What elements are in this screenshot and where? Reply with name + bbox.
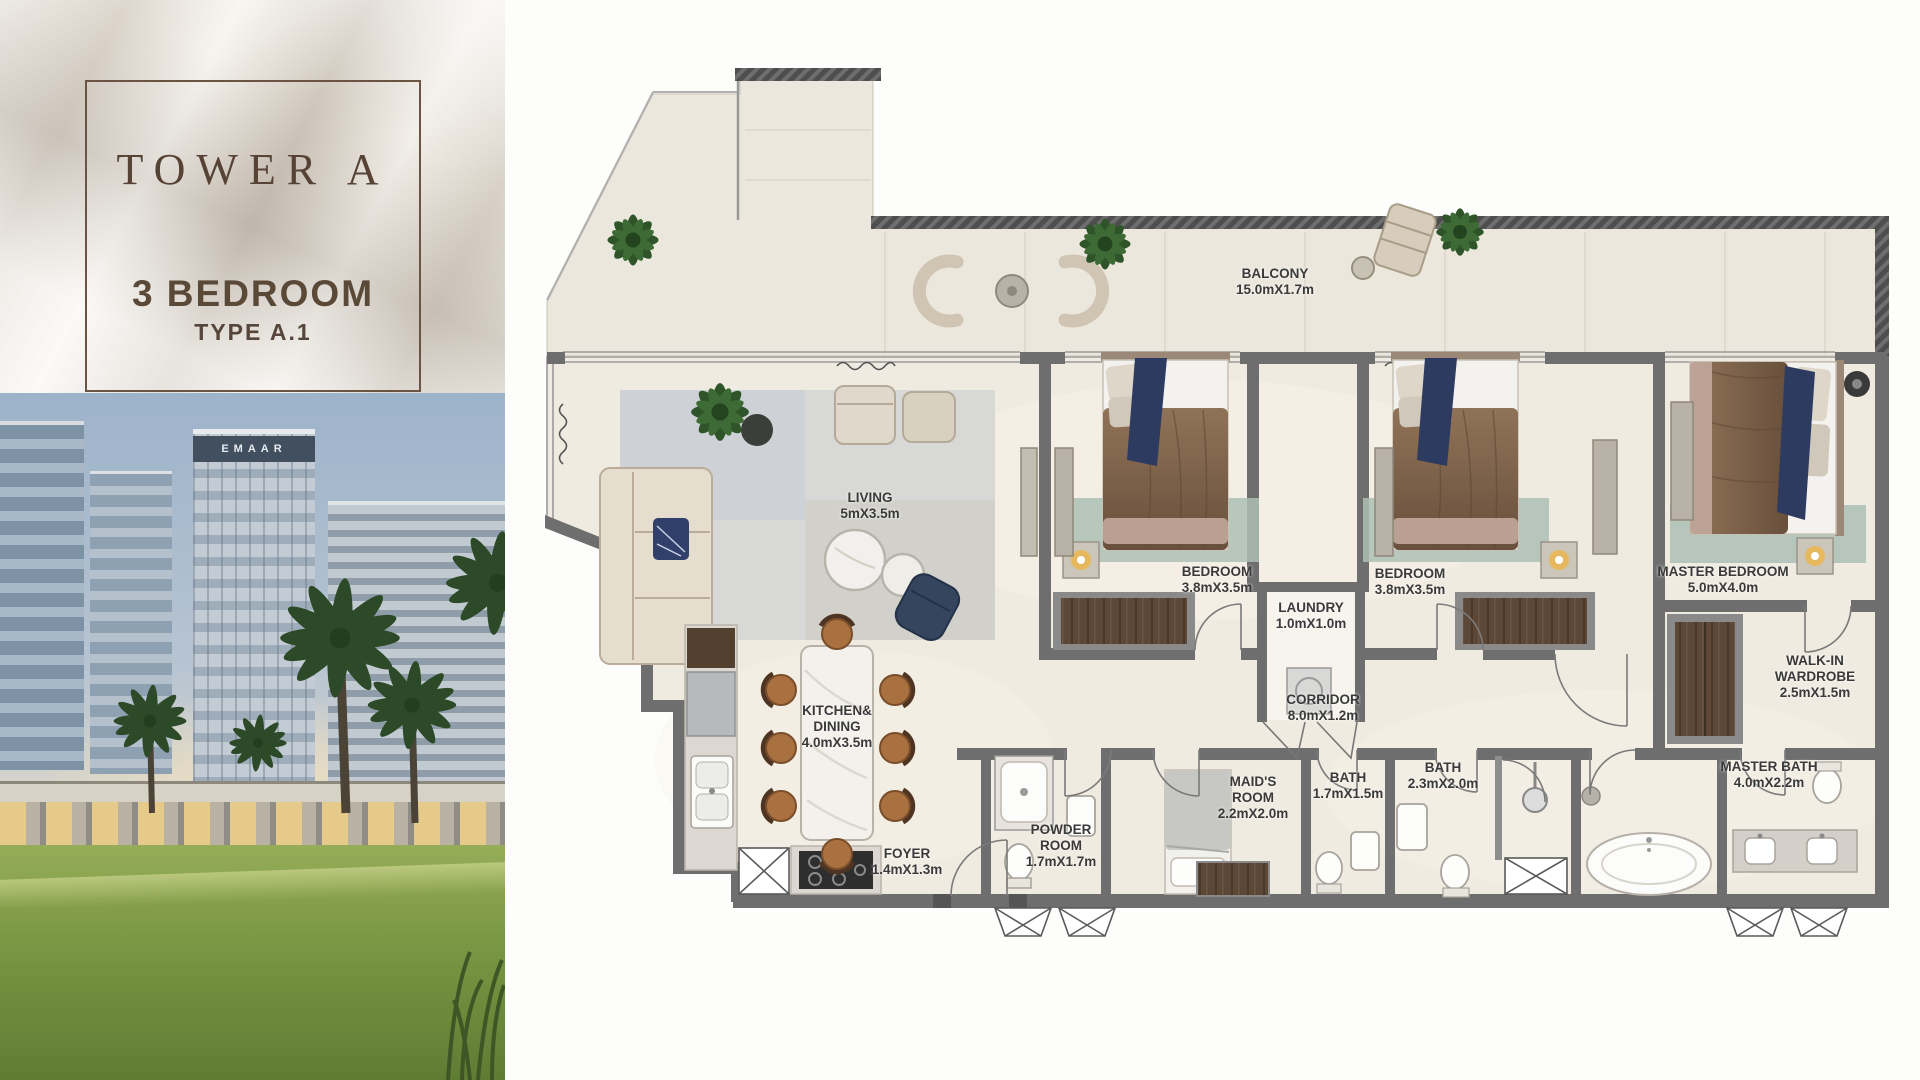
fridge [687, 672, 735, 736]
room-label-walk-in-wardrobe: WALK-IN WARDROBE2.5mX1.5m [1770, 653, 1860, 701]
room-label-kitchen-dining: KITCHEN& DINING4.0mX3.5m [791, 703, 883, 751]
dresser [1055, 448, 1073, 556]
tower-title: TOWER A [117, 144, 390, 195]
toilet [1316, 852, 1342, 884]
armchair [903, 392, 955, 442]
room-label-foyer: FOYER1.4mX1.3m [872, 846, 943, 878]
dresser [1671, 402, 1693, 520]
title-panel: TOWER A 3 BEDROOM TYPE A.1 [0, 0, 505, 393]
living-room-furniture [600, 383, 1037, 664]
master-bedroom-furniture [1670, 360, 1870, 574]
room-label-corridor: CORRIDOR8.0mX1.2m [1286, 692, 1360, 724]
toilet [1441, 855, 1469, 889]
room-label-laundry: LAUNDRY1.0mX1.0m [1276, 600, 1347, 632]
palm-trees [0, 393, 505, 1080]
tall-cabinet [687, 628, 735, 668]
room-label-bath-1: BATH1.7mX1.5m [1313, 770, 1384, 802]
room-label-master-bath: MASTER BATH4.0mX2.2m [1720, 759, 1817, 791]
grass-tufts [448, 952, 504, 1080]
dining-chair [763, 674, 796, 706]
room-label-bedroom-2: BEDROOM3.8mX3.5m [1375, 566, 1446, 598]
room-label-living: LIVING5mX3.5m [840, 490, 899, 522]
plant [608, 215, 659, 266]
room-label-balcony: BALCONY15.0mX1.7m [1236, 266, 1314, 298]
floor-plan-drawing [505, 0, 1920, 1080]
walk-in-wardrobe-closet [1667, 614, 1743, 744]
room-label-powder-room: POWDER ROOM1.7mX1.7m [1023, 822, 1099, 870]
unit-subtype: TYPE A.1 [194, 319, 311, 346]
dresser [1593, 440, 1617, 554]
title-box: TOWER A 3 BEDROOM TYPE A.1 [85, 80, 421, 392]
indoor-plant [691, 383, 749, 441]
room-label-master-bedroom: MASTER BEDROOM5.0mX4.0m [1657, 564, 1788, 596]
unit-type: 3 BEDROOM [132, 273, 374, 315]
balcony-zone [547, 68, 1889, 356]
sink [1351, 832, 1379, 870]
tv-console [1021, 448, 1037, 556]
floor-plan: BALCONY15.0mX1.7m LIVING5mX3.5m BEDROOM3… [505, 0, 1920, 1080]
dresser [1375, 448, 1393, 556]
maid-wardrobe [1197, 862, 1269, 896]
armchair [835, 386, 895, 444]
building-photo: EMAAR [0, 393, 505, 1080]
sink [1397, 804, 1427, 850]
side-table [741, 414, 773, 446]
room-label-bath-2: BATH2.3mX2.0m [1408, 760, 1479, 792]
brochure-page: TOWER A 3 BEDROOM TYPE A.1 EMAAR [0, 0, 1920, 1080]
room-label-maids-room: MAID'S ROOM2.2mX2.0m [1212, 774, 1294, 822]
room-label-bedroom-1: BEDROOM3.8mX3.5m [1182, 564, 1253, 596]
